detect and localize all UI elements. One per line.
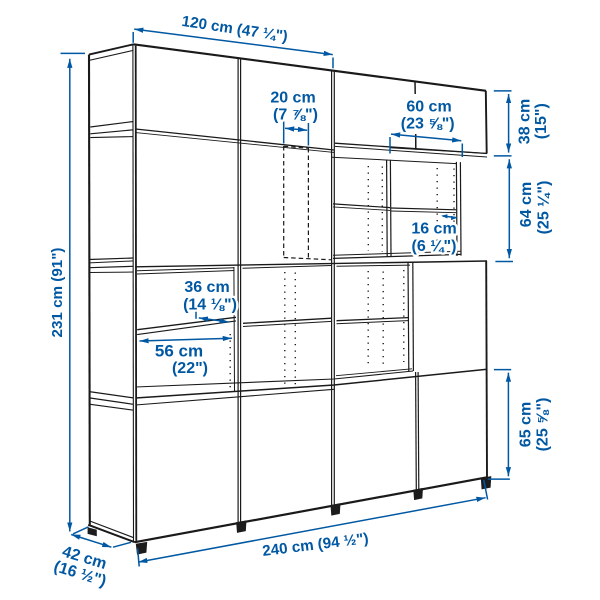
svg-text:(7 ⅞"): (7 ⅞")	[273, 107, 318, 124]
svg-text:231 cm (91"): 231 cm (91")	[49, 248, 66, 338]
svg-text:60 cm: 60 cm	[406, 99, 451, 116]
svg-text:(6 ¼"): (6 ¼")	[412, 238, 457, 255]
svg-text:65 cm: 65 cm	[518, 402, 535, 447]
svg-text:(14 ⅛"): (14 ⅛")	[183, 297, 237, 314]
svg-text:(15"): (15")	[533, 103, 550, 139]
svg-text:56 cm: 56 cm	[155, 342, 203, 361]
svg-text:16 cm: 16 cm	[411, 220, 456, 237]
svg-text:(23 ⅝"): (23 ⅝")	[401, 116, 455, 133]
svg-text:120 cm (47 ¼"): 120 cm (47 ¼")	[181, 13, 289, 46]
svg-text:36 cm: 36 cm	[184, 279, 229, 296]
svg-text:64 cm: 64 cm	[518, 182, 535, 227]
svg-text:20 cm: 20 cm	[270, 89, 315, 106]
svg-text:240 cm (94 ½"): 240 cm (94 ½")	[261, 530, 369, 560]
svg-text:(25 ⅝"): (25 ⅝")	[535, 398, 552, 452]
svg-text:(25 ¼"): (25 ¼")	[536, 181, 553, 235]
svg-text:(22"): (22")	[172, 360, 208, 377]
svg-text:38 cm: 38 cm	[517, 99, 534, 144]
